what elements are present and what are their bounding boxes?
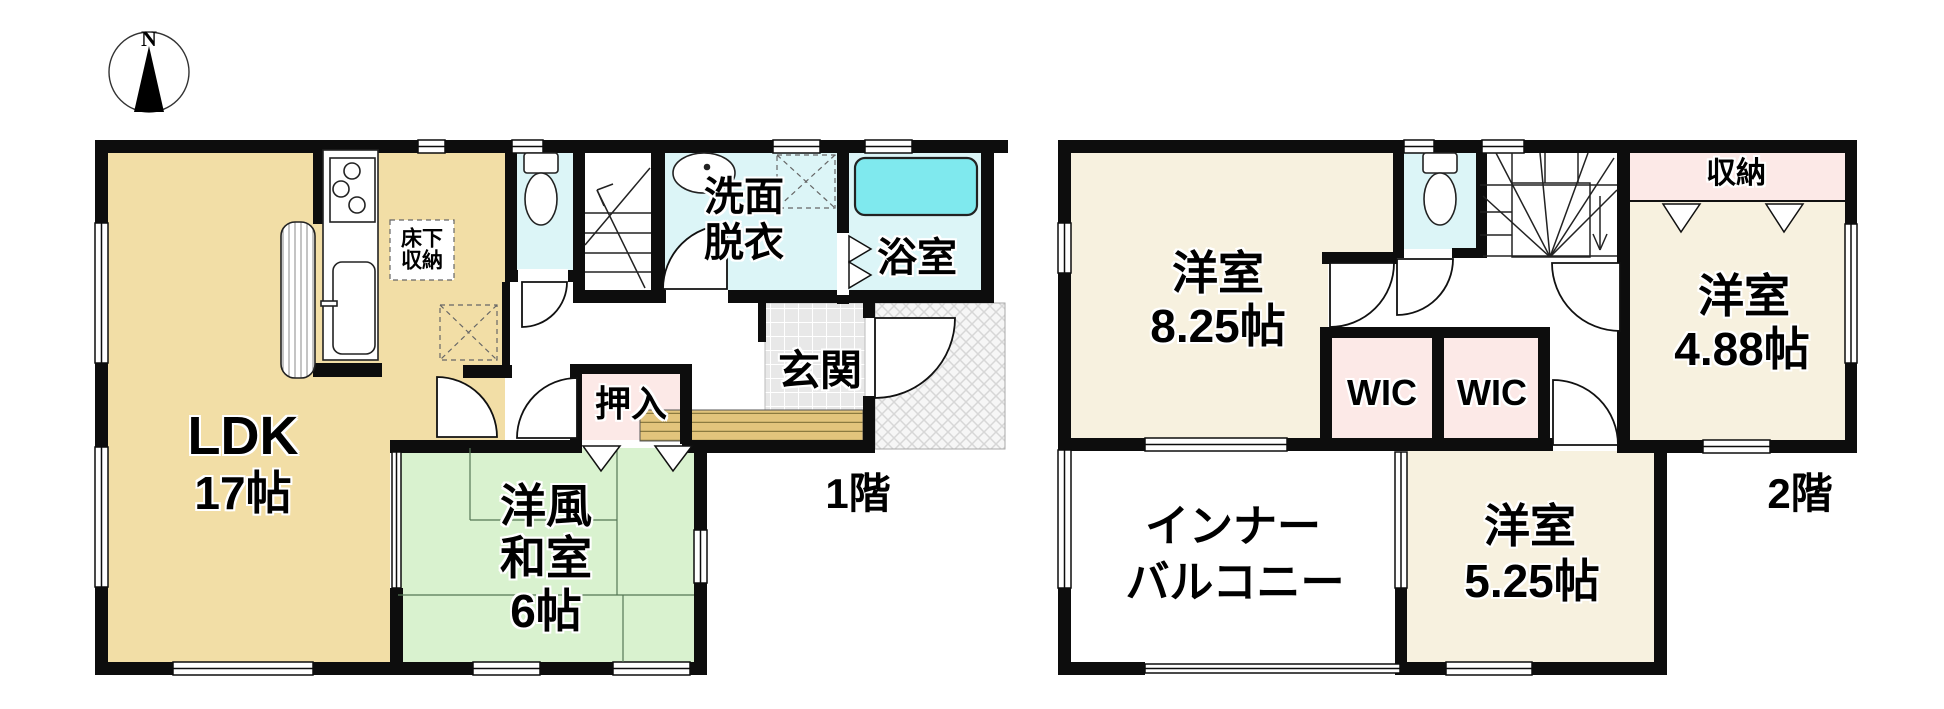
floorplan-page: N LDK 17帖 床下 収納 洗面 脱衣 浴室 玄関 押入 洋風 和室 6帖 … (0, 0, 1944, 709)
floor1-label: 1階 (825, 473, 890, 515)
washitsu-size: 6帖 (510, 588, 582, 634)
balcony-line2: バルコニー (1125, 561, 1344, 605)
room525-size: 5.25帖 (1464, 558, 1600, 604)
door-825 (1330, 263, 1394, 327)
kitchen-sink (333, 262, 375, 354)
ldk-size: 17帖 (194, 470, 291, 516)
bath-name: 浴室 (877, 238, 957, 278)
door-washitsu (517, 378, 577, 438)
balcony-line1: インナー (1145, 505, 1321, 549)
room825-size: 8.25帖 (1150, 303, 1286, 349)
kitchen-counter (281, 222, 315, 378)
room488-name: 洋室 (1698, 273, 1790, 319)
genkan-name: 玄関 (778, 350, 862, 392)
room525-name: 洋室 (1484, 503, 1576, 549)
room825-name: 洋室 (1172, 250, 1264, 296)
yukashita-line1: 床下 (401, 229, 443, 250)
senmen-line1: 洗面 (704, 177, 784, 217)
door-toilet-1f (522, 282, 567, 327)
bathtub (855, 158, 977, 215)
stairs-2f (1480, 153, 1617, 257)
washitsu-line2: 和室 (500, 535, 592, 581)
oshiire-name: 押入 (595, 386, 667, 422)
floor2-label: 2階 (1767, 473, 1832, 515)
wic2-name: WIC (1457, 375, 1527, 411)
room488-size: 4.88帖 (1674, 326, 1810, 372)
washitsu-line1: 洋風 (500, 483, 592, 529)
genkan-step (640, 410, 863, 441)
stove (330, 158, 375, 222)
floorplan-drawing (0, 0, 1944, 709)
kitchen-faucet (321, 301, 337, 306)
yukashita-line2: 収納 (401, 251, 443, 272)
senmen-line2: 脱衣 (704, 223, 784, 263)
compass-north-label: N (141, 28, 157, 50)
wic1-name: WIC (1347, 375, 1417, 411)
toilet-fixture-1f (524, 153, 558, 225)
door-toilet-2f (1397, 259, 1453, 315)
stairs-1f (585, 168, 651, 288)
shuno-name: 収納 (1706, 159, 1766, 189)
door-stairs-2f (1552, 263, 1620, 331)
door-525 (1553, 380, 1618, 445)
ldk-name: LDK (188, 409, 299, 463)
toilet-fixture-2f (1423, 153, 1457, 225)
